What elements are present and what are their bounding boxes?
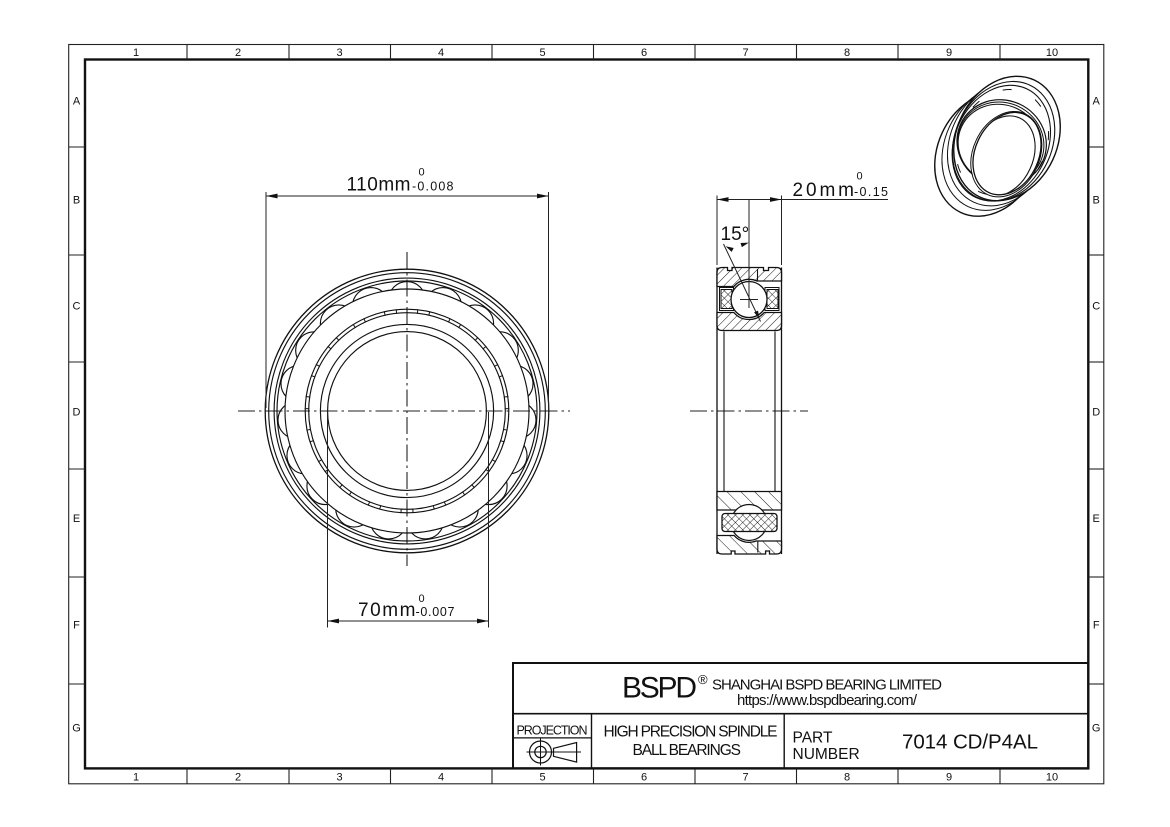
svg-text:15°: 15°	[721, 224, 750, 245]
svg-text:110mm: 110mm	[347, 175, 411, 196]
svg-text:PROJECTION: PROJECTION	[517, 724, 588, 738]
svg-text:D: D	[1092, 407, 1100, 419]
svg-text:0: 0	[857, 171, 863, 183]
svg-text:1: 1	[133, 772, 139, 784]
svg-text:3: 3	[336, 47, 342, 59]
svg-text:1: 1	[133, 47, 139, 59]
svg-text:7014 CD/P4AL: 7014 CD/P4AL	[902, 731, 1038, 754]
svg-text:0: 0	[419, 593, 425, 605]
svg-text:D: D	[73, 407, 81, 419]
svg-text:A: A	[1093, 96, 1101, 108]
svg-text:®: ®	[698, 672, 708, 687]
svg-text:C: C	[1092, 301, 1100, 313]
svg-text:NUMBER: NUMBER	[793, 746, 860, 763]
svg-text:-0.007: -0.007	[416, 605, 455, 619]
svg-text:F: F	[1093, 620, 1100, 632]
svg-text:10: 10	[1046, 47, 1058, 59]
svg-text:2: 2	[235, 47, 241, 59]
svg-text:0: 0	[419, 167, 425, 179]
svg-text:E: E	[1093, 513, 1100, 525]
svg-text:20mm: 20mm	[793, 180, 855, 201]
svg-text:HIGH PRECISION SPINDLE: HIGH PRECISION SPINDLE	[604, 724, 778, 741]
svg-text:https://www.bspdbearing.com/: https://www.bspdbearing.com/	[737, 692, 918, 709]
svg-text:-0.008: -0.008	[412, 180, 454, 194]
svg-text:F: F	[73, 620, 80, 632]
svg-text:E: E	[73, 513, 80, 525]
svg-text:10: 10	[1046, 772, 1058, 784]
svg-text:A: A	[73, 96, 81, 108]
svg-text:G: G	[72, 723, 81, 735]
svg-text:C: C	[73, 301, 81, 313]
svg-text:7: 7	[742, 772, 748, 784]
svg-text:SHANGHAI BSPD BEARING LIMITED: SHANGHAI BSPD BEARING LIMITED	[712, 677, 942, 694]
svg-text:8: 8	[844, 47, 850, 59]
svg-text:8: 8	[844, 772, 850, 784]
svg-text:9: 9	[946, 47, 952, 59]
svg-text:BALL BEARINGS: BALL BEARINGS	[633, 742, 742, 759]
svg-text:9: 9	[946, 772, 952, 784]
svg-text:3: 3	[336, 772, 342, 784]
svg-text:PART: PART	[793, 730, 833, 747]
svg-text:BSPD: BSPD	[622, 672, 697, 705]
svg-text:6: 6	[641, 47, 647, 59]
svg-text:4: 4	[438, 772, 444, 784]
svg-text:6: 6	[641, 772, 647, 784]
svg-text:2: 2	[235, 772, 241, 784]
svg-text:B: B	[1093, 195, 1100, 207]
svg-text:5: 5	[539, 772, 545, 784]
svg-text:70mm: 70mm	[358, 600, 416, 621]
svg-text:5: 5	[539, 47, 545, 59]
svg-text:G: G	[1092, 723, 1101, 735]
svg-text:7: 7	[742, 47, 748, 59]
svg-text:-0.15: -0.15	[854, 185, 888, 199]
svg-text:4: 4	[438, 47, 444, 59]
svg-text:B: B	[73, 195, 80, 207]
